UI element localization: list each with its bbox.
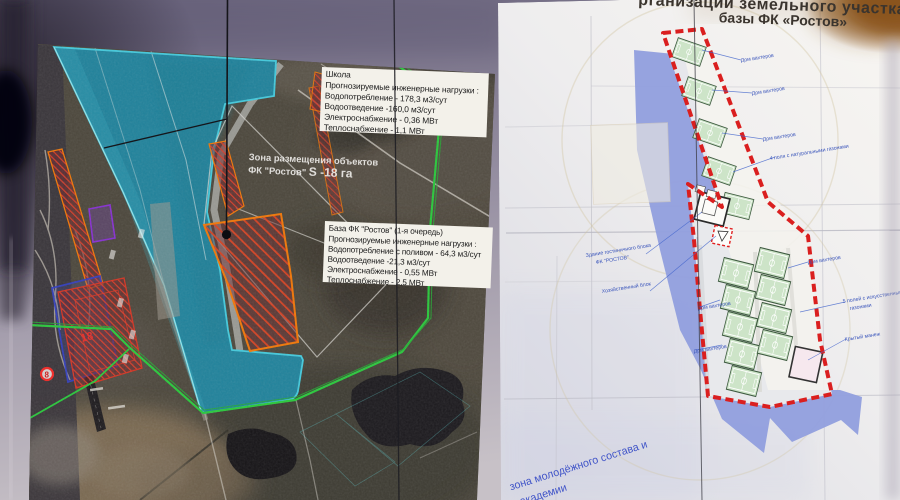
- svg-text:Школа: Школа: [326, 69, 352, 80]
